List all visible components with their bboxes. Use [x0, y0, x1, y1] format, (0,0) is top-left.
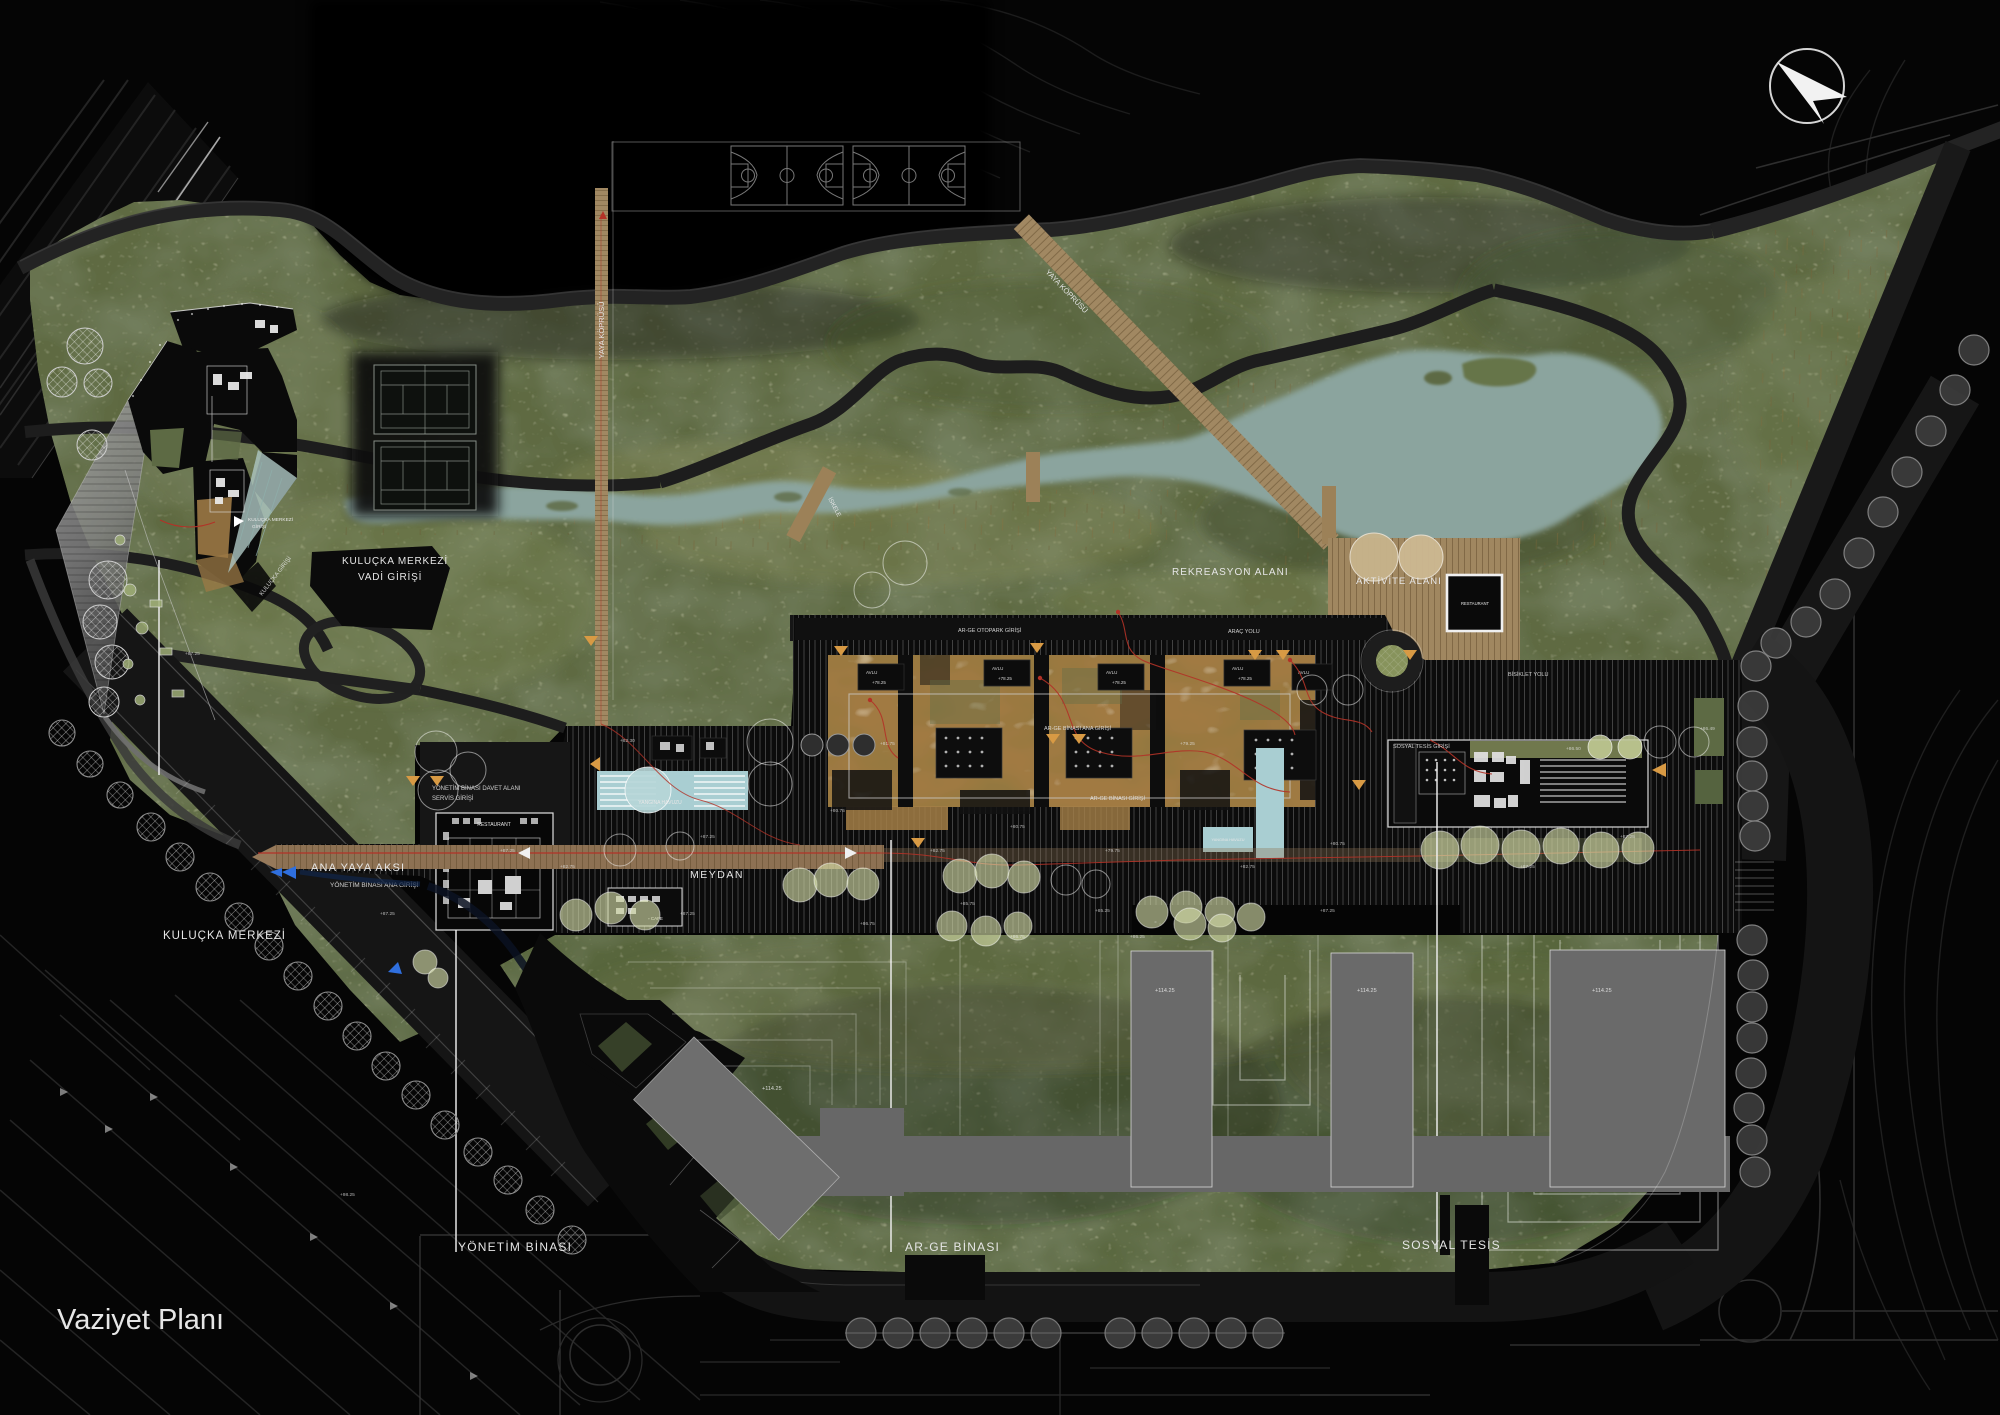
svg-text:SOSYAL TESİS: SOSYAL TESİS [1402, 1238, 1501, 1252]
svg-text:+82.75: +82.75 [930, 848, 945, 854]
svg-text:+79.25: +79.25 [1180, 741, 1195, 747]
svg-text:+81.75: +81.75 [880, 741, 895, 747]
svg-text:+80.75: +80.75 [1010, 824, 1025, 830]
svg-text:+114.25: +114.25 [762, 1086, 782, 1092]
svg-text:SERVİS GİRİŞİ: SERVİS GİRİŞİ [432, 795, 474, 802]
svg-text:+114.25: +114.25 [1592, 988, 1612, 994]
svg-text:KULUÇKA MERKEZİ: KULUÇKA MERKEZİ [163, 929, 286, 942]
svg-text:+78.25: +78.25 [872, 680, 886, 685]
svg-text:+79.75: +79.75 [1105, 848, 1120, 854]
svg-text:ANA YAYA AKSI: ANA YAYA AKSI [311, 862, 405, 874]
svg-text:RESTAURANT: RESTAURANT [477, 822, 511, 828]
svg-text:MEYDAN: MEYDAN [690, 869, 744, 881]
svg-text:REKREASYON ALANI: REKREASYON ALANI [1172, 567, 1289, 578]
svg-text:+87.25: +87.25 [380, 911, 395, 917]
svg-text:+78.25: +78.25 [1238, 676, 1252, 681]
svg-text:+80.75: +80.75 [1330, 841, 1345, 847]
svg-text:ARAÇ YOLU: ARAÇ YOLU [1228, 629, 1260, 635]
svg-text:YAYA KÖPRÜSÜ: YAYA KÖPRÜSÜ [597, 301, 606, 358]
svg-text:+82.30: +82.30 [620, 738, 635, 744]
svg-text:+86.50: +86.50 [1566, 746, 1581, 752]
svg-text:KULUÇKA MERKEZİ: KULUÇKA MERKEZİ [342, 554, 448, 567]
svg-text:SOSYAL TESİS GİRİŞİ: SOSYAL TESİS GİRİŞİ [1393, 743, 1450, 750]
svg-text:+98.25: +98.25 [340, 1192, 355, 1198]
svg-text:+80.75: +80.75 [830, 808, 845, 814]
svg-text:YANGINA HAVUZU: YANGINA HAVUZU [638, 800, 682, 806]
svg-text:BİSİKLET YOLU: BİSİKLET YOLU [1508, 671, 1548, 678]
svg-text:+86.25: +86.25 [1130, 934, 1145, 940]
svg-text:+78.25: +78.25 [998, 676, 1012, 681]
svg-text:+82.75: +82.75 [1240, 864, 1255, 870]
svg-text:AR-GE BİNASI: AR-GE BİNASI [905, 1240, 1000, 1254]
svg-text:AR-GE BİNASI GİRİŞİ: AR-GE BİNASI GİRİŞİ [1090, 795, 1145, 802]
svg-text:VADİ GİRİŞİ: VADİ GİRİŞİ [358, 570, 422, 583]
svg-text:+114.25: +114.25 [1155, 988, 1175, 994]
svg-text:+87.25: +87.25 [700, 834, 715, 840]
svg-text:+87.25: +87.25 [1520, 864, 1535, 870]
svg-text:+114.25: +114.25 [1357, 988, 1377, 994]
svg-text:+87.25: +87.25 [1620, 834, 1635, 840]
svg-text:YÖNETİM BİNASI DAVET ALANI: YÖNETİM BİNASI DAVET ALANI [432, 785, 521, 792]
svg-text:AVLU: AVLU [1106, 670, 1117, 675]
svg-text:YANGINA HAVUZU: YANGINA HAVUZU [1212, 838, 1245, 842]
svg-text:AVLU: AVLU [992, 666, 1003, 671]
svg-text:+85.75: +85.75 [960, 901, 975, 907]
svg-text:AVLU: AVLU [866, 670, 877, 675]
svg-text:+78.25: +78.25 [1112, 680, 1126, 685]
svg-text:+87.25: +87.25 [500, 848, 515, 854]
svg-text:YÖNETİM BİNASI: YÖNETİM BİNASI [458, 1240, 572, 1254]
svg-text:Vaziyet Planı: Vaziyet Planı [57, 1304, 224, 1336]
svg-text:AVLU: AVLU [1232, 666, 1243, 671]
svg-text:KULUÇKA MERKEZİ: KULUÇKA MERKEZİ [248, 516, 293, 523]
svg-text:+87.25: +87.25 [185, 651, 200, 657]
svg-text:+87.25: +87.25 [1320, 908, 1335, 914]
svg-text:AR-GE BİNASI ANA GİRİŞİ: AR-GE BİNASI ANA GİRİŞİ [1044, 725, 1112, 732]
svg-text:+86.49: +86.49 [1700, 726, 1715, 732]
svg-text:AKTİVİTE ALANI: AKTİVİTE ALANI [1356, 576, 1442, 587]
svg-text:RESTAURANT: RESTAURANT [1461, 601, 1490, 606]
svg-text:AR-GE OTOPARK GİRİŞİ: AR-GE OTOPARK GİRİŞİ [958, 627, 1022, 634]
svg-text:+87.25: +87.25 [680, 911, 695, 917]
svg-text:+82.75: +82.75 [560, 864, 575, 870]
svg-text:+85.25: +85.25 [1095, 908, 1110, 914]
svg-text:GİRİŞİ: GİRİŞİ [252, 523, 266, 530]
svg-text:+86.75: +86.75 [860, 921, 875, 927]
svg-text:+86.75: +86.75 [1010, 934, 1025, 940]
